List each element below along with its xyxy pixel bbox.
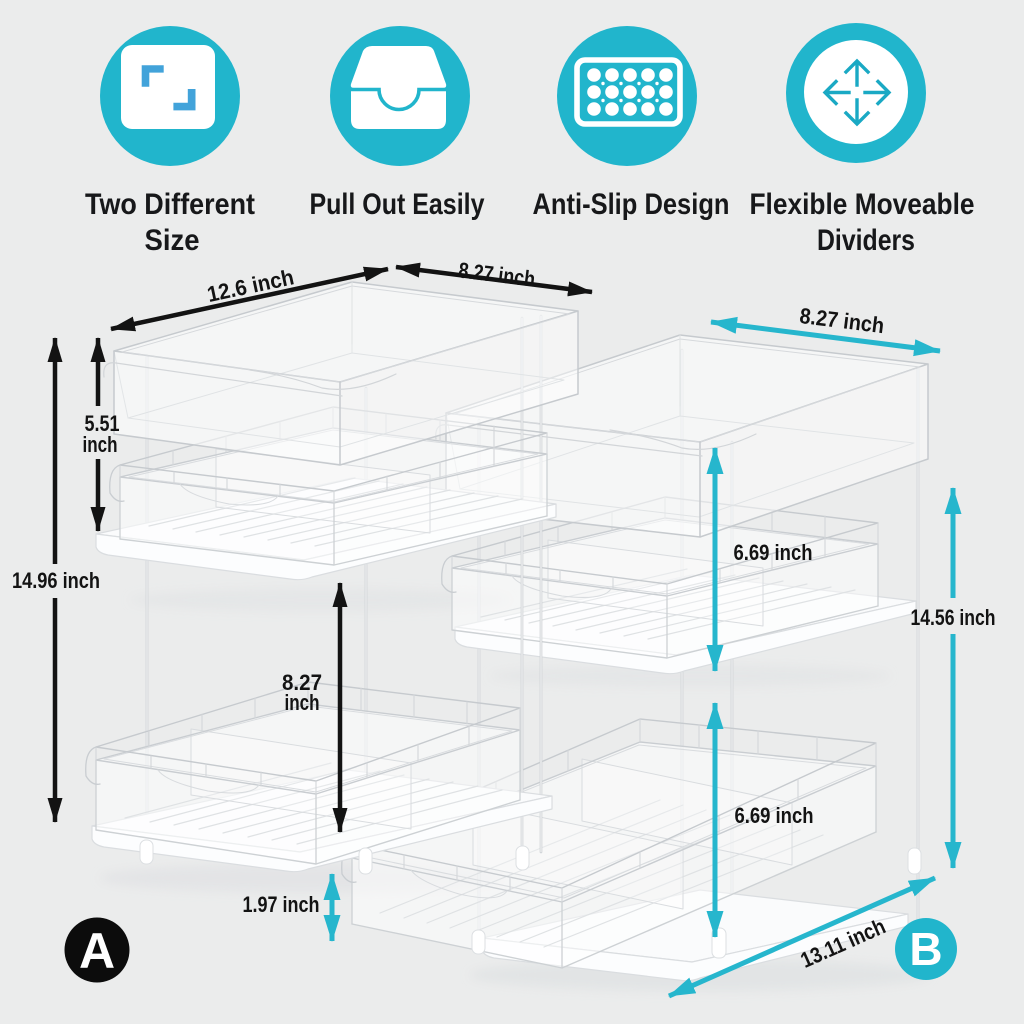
svg-text:1.97 inch: 1.97 inch — [243, 892, 320, 917]
svg-text:B: B — [909, 923, 942, 975]
svg-text:Anti-Slip Design: Anti-Slip Design — [533, 188, 730, 221]
svg-text:Two Different: Two Different — [85, 188, 255, 221]
svg-text:14.56 inch: 14.56 inch — [911, 605, 996, 630]
svg-text:Size: Size — [145, 224, 200, 257]
svg-text:A: A — [79, 923, 115, 979]
svg-text:6.69 inch: 6.69 inch — [734, 540, 813, 565]
svg-text:Dividers: Dividers — [817, 224, 915, 257]
svg-text:Flexible Moveable: Flexible Moveable — [750, 188, 975, 221]
svg-text:6.69 inch: 6.69 inch — [735, 803, 814, 828]
svg-text:inch: inch — [83, 432, 118, 457]
svg-text:Pull Out Easily: Pull Out Easily — [310, 188, 485, 221]
svg-text:14.96 inch: 14.96 inch — [12, 568, 100, 593]
svg-text:inch: inch — [285, 690, 320, 715]
